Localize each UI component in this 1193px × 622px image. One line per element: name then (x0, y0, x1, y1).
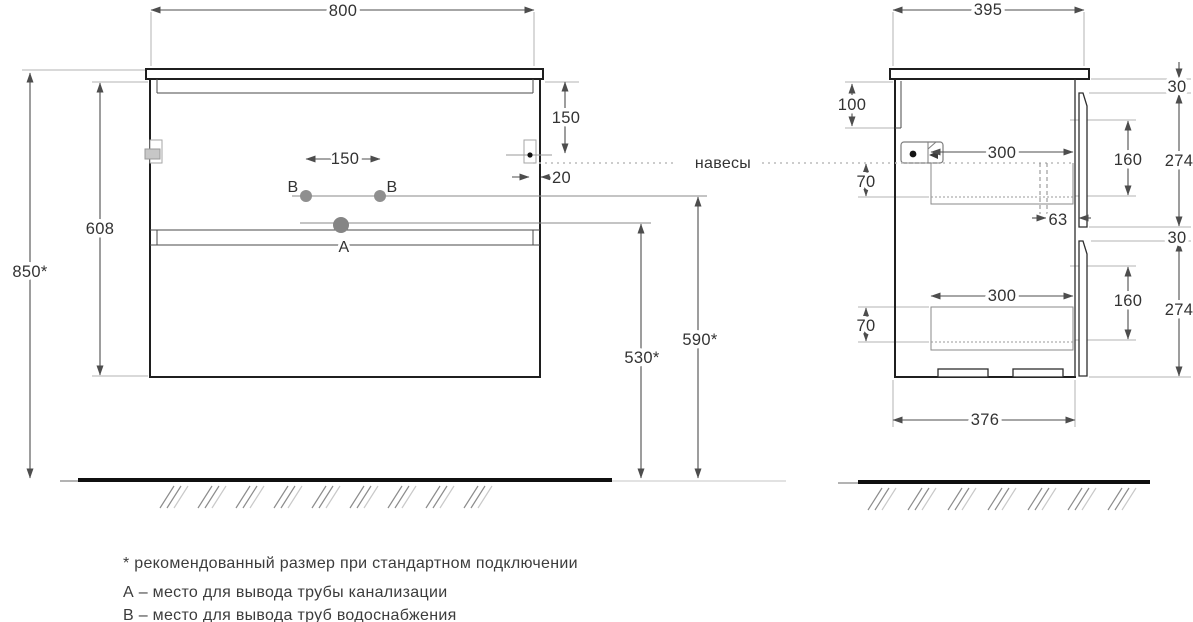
wall-hanger-left (145, 140, 162, 163)
drawer-box-1 (931, 163, 1073, 214)
dim-drain-height: 530* (624, 349, 659, 367)
dim-body-height: 608 (86, 220, 114, 238)
footnote-drain-outlet: А – место для вывода трубы канализации (123, 584, 447, 601)
label-hole-b-right: В (387, 179, 398, 196)
drawer-front-2 (1079, 241, 1087, 376)
dim-water-height: 590* (682, 331, 717, 349)
label-hangers: навесы (695, 155, 751, 172)
dim-front1-height: 274 (1165, 152, 1193, 170)
dim-back-rail: 100 (838, 96, 866, 114)
floor-right (838, 482, 1150, 510)
footnote-water-outlet: В – место для вывода труб водоснабжения (123, 607, 457, 622)
dim-mount-top: 150 (552, 109, 580, 127)
dim-top-gap: 30 (1168, 78, 1187, 96)
dim-inner1-height: 160 (1114, 151, 1142, 169)
dim-box1-height: 70 (857, 173, 876, 191)
side-countertop (890, 69, 1089, 79)
hole-b-left (300, 190, 312, 202)
technical-drawing-vanity: 800 850* 608 150 20 150 590* 530* В В А … (0, 0, 1193, 622)
hole-a (333, 217, 349, 233)
front-cabinet (145, 69, 707, 377)
drawer-front-1 (1079, 93, 1087, 227)
side-view: 395 100 30 300 70 160 274 63 30 300 70 1… (838, 1, 1193, 510)
floor-hatching-left (160, 486, 485, 508)
dim-front2-height: 274 (1165, 301, 1193, 319)
floor-left (60, 480, 786, 508)
label-hole-a: А (339, 239, 350, 256)
dim-siphon-offset: 63 (1049, 211, 1068, 229)
footnote-recommended-size: * рекомендованный размер при стандартном… (123, 555, 578, 572)
front-countertop (146, 69, 543, 79)
footnotes: * рекомендованный размер при стандартном… (123, 555, 578, 622)
floor-hatching-right (868, 488, 1129, 510)
label-hole-b-left: В (288, 179, 299, 196)
dim-depth: 395 (974, 1, 1002, 19)
foot-left (938, 369, 988, 377)
dim-inner2-height: 160 (1114, 292, 1142, 310)
dim-bottom-depth: 376 (971, 411, 999, 429)
dim-holes-spacing: 150 (331, 150, 359, 168)
dim-overall-height: 850* (12, 263, 47, 281)
drawer-box-2 (931, 307, 1073, 350)
dim-front-width: 800 (329, 2, 357, 20)
front-view: 800 850* 608 150 20 150 590* 530* В В А … (12, 2, 893, 508)
dim-box2-depth: 300 (988, 287, 1016, 305)
dim-box2-height: 70 (857, 317, 876, 335)
dim-mount-edge: 20 (552, 169, 571, 187)
dim-middle-gap: 30 (1168, 229, 1187, 247)
hole-b-right (374, 190, 386, 202)
dim-box1-depth: 300 (988, 144, 1016, 162)
foot-right (1013, 369, 1063, 377)
